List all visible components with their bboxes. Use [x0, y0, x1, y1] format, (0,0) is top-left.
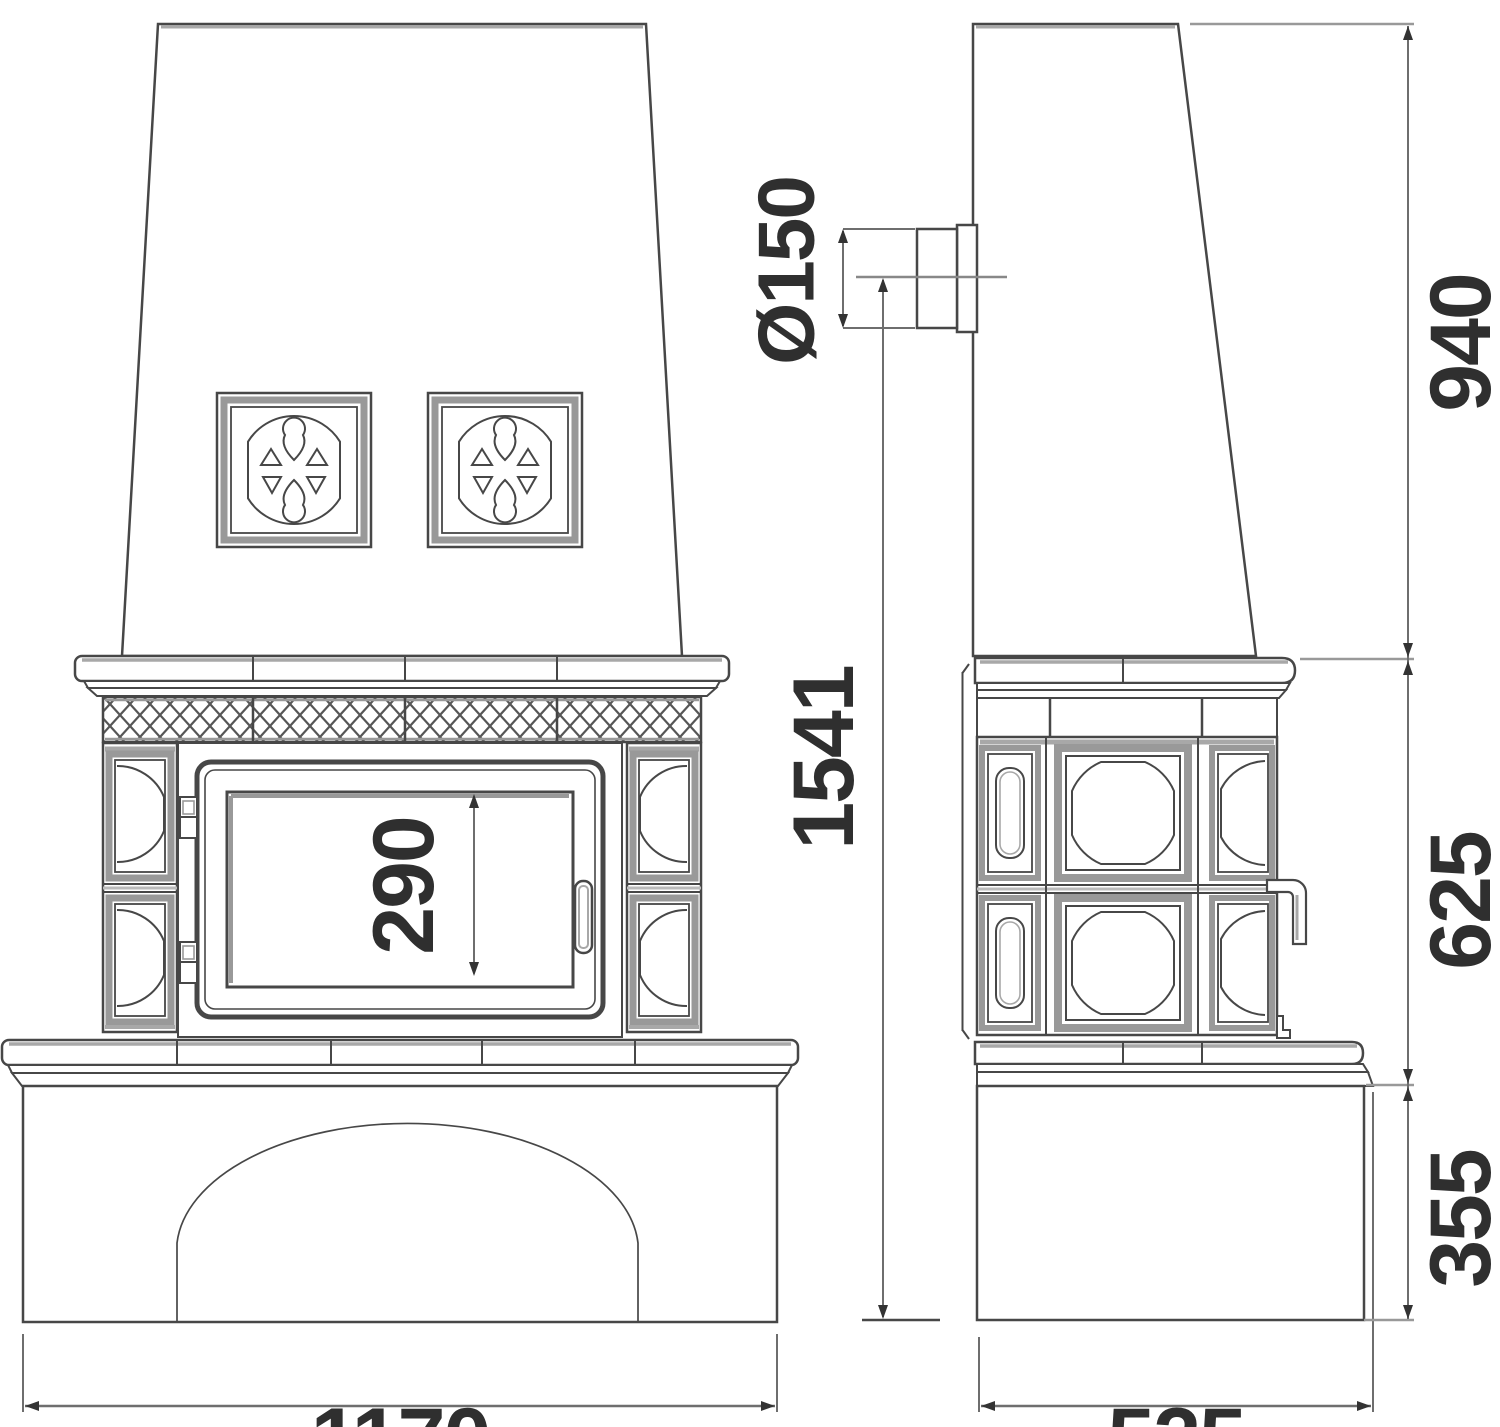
side-view: Ø150 1541 — [742, 24, 1500, 1427]
stove-drawing-svg: 290 1170 — [0, 0, 1500, 1427]
door-hinge-bottom — [180, 942, 197, 983]
base-side — [975, 1042, 1373, 1320]
dim-label-overall-depth: 525 — [1107, 1391, 1245, 1427]
dim-label-door-opening: 290 — [356, 817, 452, 955]
door-hinge-top — [180, 797, 197, 838]
mantel-shelf-side — [975, 658, 1295, 698]
dim-label-upper-height: 940 — [1413, 274, 1500, 412]
rosette-tile-right — [428, 393, 582, 547]
tile-column-right — [627, 743, 701, 1032]
front-view: 290 1170 — [2, 24, 798, 1427]
lattice-frieze — [103, 697, 701, 742]
chimney-front — [122, 24, 682, 656]
dim-label-flue-diameter: Ø150 — [742, 177, 831, 365]
dim-flue-diameter: Ø150 — [742, 177, 916, 365]
tile-column-left — [103, 743, 177, 1032]
door-latch-side — [1277, 1016, 1290, 1038]
base-plinth-side — [977, 1086, 1364, 1320]
base-plinth-front — [23, 1086, 777, 1322]
rosette-tile-left — [217, 393, 371, 547]
frieze-side — [977, 698, 1277, 737]
dim-overall-width: 1170 — [23, 1334, 777, 1427]
door-handle — [575, 881, 592, 953]
dim-label-total-height: 1541 — [776, 666, 872, 849]
base-front — [2, 1040, 798, 1322]
dim-label-overall-width: 1170 — [311, 1391, 490, 1427]
technical-drawing-canvas: 290 1170 — [0, 0, 1500, 1427]
dim-label-base-height: 355 — [1413, 1150, 1500, 1288]
dim-label-body-height: 625 — [1413, 832, 1500, 970]
mantel-shelf-front — [75, 656, 729, 696]
flue-pipe — [917, 225, 977, 332]
chimney-side — [973, 24, 1256, 656]
